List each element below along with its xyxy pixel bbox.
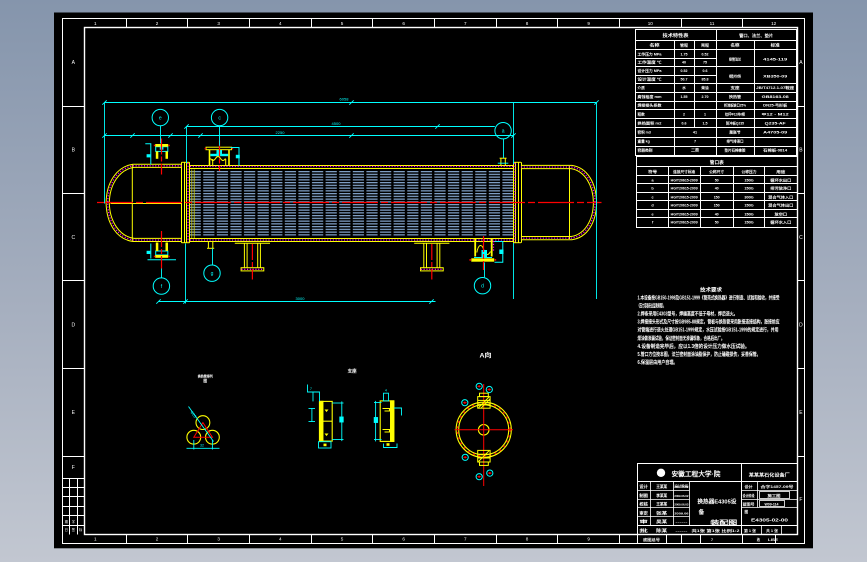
svg-text:GB8163-08: GB8163-08 [762,95,789,99]
svg-text:2.70: 2.70 [702,95,709,99]
svg-text:名称: 名称 [731,43,740,48]
svg-text:工作温度 ℃: 工作温度 ℃ [638,60,663,65]
svg-text:1: 1 [94,21,97,26]
svg-text:150: 150 [714,204,720,208]
svg-text:共 1 张: 共 1 张 [766,528,779,533]
svg-text:e: e [652,213,654,217]
svg-text:2009.06.02: 2009.06.02 [674,494,688,498]
svg-text:陈某: 陈某 [656,527,667,533]
svg-text:支座: 支座 [348,368,358,375]
svg-text:1.75: 1.75 [681,53,688,57]
svg-text:审: 审 [639,519,648,524]
svg-text:吴某: 吴某 [656,518,667,524]
svg-text:9: 9 [587,21,590,26]
svg-text:图: 图 [745,509,749,514]
svg-text:水: 水 [681,85,686,90]
svg-text:重量 kg: 重量 kg [638,139,650,144]
svg-text:3.焊接接头形式及尺寸按GB985-88规定，管板与换热管采: 3.焊接接头形式及尺寸按GB985-88规定，管板与换热管采用胀接连接结构，胀接… [638,319,780,326]
svg-text:7: 7 [464,537,467,542]
svg-text:容积 m3: 容积 m3 [637,130,651,135]
svg-text:LISE: LISE [768,538,778,542]
svg-text:150lb: 150lb [744,213,754,217]
svg-text:5.管口方位按本图，法兰密封面涂油脂保护，防止磕碰损伤，妥善: 5.管口方位按本图，法兰密封面涂油脂保护，防止磕碰损伤，妥善保管。 [638,351,761,358]
svg-text:50: 50 [715,179,719,183]
svg-text:审定: 审定 [639,510,648,515]
svg-text:折流板缺口25%: 折流板缺口25% [724,103,747,108]
svg-text:D: D [799,323,803,329]
svg-text:施工图: 施工图 [768,493,781,498]
svg-text:防冲板Q235: 防冲板Q235 [726,121,744,126]
svg-text:F: F [72,465,75,471]
svg-text:《压力容器安全监察规程》。: 《压力容器安全监察规程》。 [638,302,666,309]
svg-text:程数: 程数 [637,111,646,116]
svg-text:HG/T20615-2009: HG/T20615-2009 [671,179,698,183]
svg-text:6058: 6058 [340,97,350,102]
svg-text:150lb: 150lb [744,221,754,225]
svg-text:a: a [502,129,505,135]
svg-text:管程: 管程 [680,43,688,48]
svg-text:2250: 2250 [276,130,286,135]
svg-text:A向: A向 [480,352,492,360]
svg-text:2: 2 [683,112,685,116]
svg-text:柴油: 柴油 [700,85,709,90]
svg-text:4: 4 [279,537,282,542]
svg-text:E4305-02-00: E4305-02-00 [751,518,789,523]
svg-text:7: 7 [310,387,312,391]
svg-text:换热面积 m2: 换热面积 m2 [638,121,662,126]
svg-text:7: 7 [711,538,713,542]
svg-text:85.8: 85.8 [702,77,709,81]
svg-text:11: 11 [710,21,715,26]
svg-text:腐蚀裕度 mm: 腐蚀裕度 mm [638,94,662,99]
svg-text:膨胀节: 膨胀节 [728,130,741,135]
svg-text:Φ12 - M12: Φ12 - M12 [762,112,789,116]
svg-text:4500: 4500 [332,121,342,126]
svg-text:日: 日 [65,528,68,532]
svg-text:75: 75 [703,61,707,65]
svg-text:5: 5 [341,21,344,26]
svg-text:HG/T20615-2009: HG/T20615-2009 [671,196,698,200]
svg-text:管口表: 管口表 [710,159,724,166]
svg-text:3: 3 [217,21,220,26]
svg-text:底图总号: 底图总号 [642,537,661,542]
svg-text:接管法兰: 接管法兰 [729,57,741,62]
svg-text:4145-119: 4145-119 [763,58,787,62]
svg-text:3000: 3000 [296,296,306,301]
svg-text:换热管: 换热管 [729,94,742,99]
svg-text:对管端进行退火处理GB151-1999规定，水压试验按GB1: 对管端进行退火处理GB151-1999规定，水压试验按GB151-1999的规定… [638,327,779,334]
svg-text:蓝图号: 蓝图号 [743,501,756,506]
svg-text:2009.06: 2009.06 [674,511,688,515]
svg-text:连接尺寸标准: 连接尺寸标准 [672,169,695,174]
svg-text:50: 50 [715,221,719,225]
svg-text:8: 8 [526,21,529,26]
svg-text:公称压力: 公称压力 [742,169,757,174]
svg-text:150: 150 [714,196,720,200]
svg-text:石棉板-0814: 石棉板-0814 [762,148,787,153]
svg-text:1: 1 [94,537,97,542]
svg-text:40: 40 [682,61,686,65]
svg-text:2009.06.03: 2009.06.03 [674,503,688,507]
svg-text:Q235-AF: Q235-AF [765,122,786,126]
svg-text:C: C [799,235,803,241]
svg-text:4: 4 [279,21,282,26]
svg-text:JB/T4712.1-07鞍座: JB/T4712.1-07鞍座 [756,85,795,90]
svg-text:0.52: 0.52 [702,53,709,57]
svg-text:换热器E4305设: 换热器E4305设 [697,498,736,506]
svg-text:设计: 设计 [639,484,648,489]
svg-text:介质: 介质 [637,85,646,90]
svg-text:150lb: 150lb [744,179,754,183]
svg-text:1.55: 1.55 [681,95,688,99]
svg-text:e: e [159,115,162,121]
svg-text:c: c [652,196,654,200]
svg-text:7: 7 [464,21,467,26]
svg-text:150lb: 150lb [744,204,754,208]
svg-text:名称: 名称 [650,43,660,48]
svg-text:1.5: 1.5 [703,122,708,126]
svg-text:2: 2 [156,537,159,542]
svg-text:1.本设备按GB150-1998及GB151-1999《管壳: 1.本设备按GB150-1998及GB151-1999《管壳式换热器》进行制造、… [638,294,780,301]
svg-text:共1张 第1张 比例1:2: 共1张 第1张 比例1:2 [692,528,740,533]
svg-text:校核: 校核 [639,502,648,507]
svg-text:管口、法兰、垫片: 管口、法兰、垫片 [739,32,773,39]
svg-text:排污放净口: 排污放净口 [770,186,792,191]
svg-text:拉杆Φ12共6根: 拉杆Φ12共6根 [725,111,745,116]
svg-text:设计阶段: 设计阶段 [674,484,688,488]
svg-text:张某: 张某 [656,509,667,515]
svg-text:0.6: 0.6 [682,122,687,126]
svg-text:技术要求: 技术要求 [700,286,723,294]
svg-text:------: ------ [675,529,687,533]
svg-text:标准: 标准 [770,43,780,48]
svg-text:第 1 张: 第 1 张 [744,528,757,533]
svg-text:符号: 符号 [648,169,658,174]
svg-text:安徽工程大学·院: 安徽工程大学·院 [672,469,722,478]
svg-text:HG/T20615-2009: HG/T20615-2009 [671,204,698,208]
svg-text:字: 字 [72,519,75,524]
svg-text:合字1457-09号: 合字1457-09号 [761,484,795,489]
svg-text:循环水出口: 循环水出口 [769,178,792,183]
svg-text:混合气体出口: 混合气体出口 [768,203,794,208]
svg-text:容器类别: 容器类别 [636,148,652,153]
svg-text:备: 备 [698,508,705,516]
svg-text:垫片石棉橡胶: 垫片石棉橡胶 [725,148,746,153]
svg-text:C: C [71,235,75,241]
svg-text:放空口: 放空口 [773,212,788,217]
svg-text:F: F [799,497,802,503]
svg-text:A4705-09: A4705-09 [763,131,787,135]
svg-text:2.焊条采用E4303型号，焊缝高度不低于母材，焊后退火。: 2.焊条采用E4303型号，焊缝高度不低于母材，焊后退火。 [638,311,738,318]
svg-text:李某某: 李某某 [656,492,667,498]
svg-text:0.6: 0.6 [703,69,708,73]
svg-text:支座: 支座 [729,85,740,90]
svg-text:焊接接头系数: 焊接接头系数 [636,103,662,108]
svg-text:50.7: 50.7 [681,77,688,81]
svg-text:某某某石化设备厂: 某某某石化设备厂 [748,472,791,479]
svg-text:0.52: 0.52 [681,69,688,73]
svg-text:10: 10 [648,21,654,26]
svg-text:6.保温层由用户自理。: 6.保温层由用户自理。 [638,359,678,366]
svg-text:用途: 用途 [775,169,786,174]
svg-text:8: 8 [526,537,529,542]
svg-text:工作压力 MPa: 工作压力 MPa [638,52,663,57]
svg-text:设计: 设计 [745,484,754,489]
svg-text:排气排液口: 排气排液口 [727,139,744,144]
svg-text:煤油做渗漏试验，保证密封面无渗漏现象，合格后出厂。: 煤油做渗漏试验，保证密封面无渗漏现象，合格后出厂。 [638,335,725,342]
svg-text:150lb: 150lb [744,187,754,191]
svg-text:5: 5 [341,537,344,542]
svg-text:d: d [481,284,484,290]
svg-text:技术特性表: 技术特性表 [663,32,689,39]
svg-text:批: 批 [639,528,648,533]
svg-text:相垫片材料: 相垫片材料 [729,74,741,79]
svg-text:HG/T20615-2009: HG/T20615-2009 [671,213,698,217]
svg-text:41: 41 [693,131,697,135]
svg-text:王某某: 王某某 [656,483,667,489]
svg-text:设计压力 MPa: 设计压力 MPa [638,68,663,73]
svg-text:2: 2 [156,21,159,26]
svg-text:12: 12 [771,21,777,26]
svg-text:二类: 二类 [691,148,699,153]
svg-text:制图: 制图 [639,493,648,498]
svg-text:40: 40 [715,187,719,191]
svg-text:g: g [211,271,214,277]
svg-text:XB350-09: XB350-09 [763,75,787,79]
svg-text:王某某: 王某某 [656,501,667,507]
svg-text:6: 6 [402,537,405,542]
svg-text:300lb: 300lb [744,196,754,200]
svg-text:HG/T20615-2009: HG/T20615-2009 [671,187,698,191]
svg-text:循环水入口: 循环水入口 [769,220,792,225]
svg-text:------: ------ [675,520,687,524]
svg-text:图: 图 [203,378,207,383]
svg-text:9: 9 [587,537,590,542]
svg-text:装配图: 装配图 [709,518,739,526]
svg-text:32: 32 [200,444,204,448]
svg-text:HG/T20615-2009: HG/T20615-2009 [671,221,698,225]
svg-text:7: 7 [694,140,696,144]
svg-text:DN25-弓形板: DN25-弓形板 [763,103,788,108]
svg-text:设计阶段: 设计阶段 [743,493,756,498]
svg-text:设计温度 ℃: 设计温度 ℃ [638,76,663,81]
svg-text:D: D [71,323,75,329]
svg-text:W09-114: W09-114 [765,502,779,506]
svg-text:期: 期 [65,519,68,524]
svg-text:4: 4 [385,389,387,393]
svg-text:公称尺寸: 公称尺寸 [709,169,724,174]
svg-text:4.设备制造完毕后，应以1.3倍的设计压力做水压试验。: 4.设备制造完毕后，应以1.3倍的设计压力做水压试验。 [638,343,750,350]
svg-text:换热管排列: 换热管排列 [198,374,213,379]
svg-text:混合气体入口: 混合气体入口 [768,195,794,200]
svg-text:6: 6 [402,21,405,26]
svg-text:40: 40 [715,213,719,217]
svg-text:壳程: 壳程 [700,43,710,48]
svg-text:1: 1 [704,112,706,116]
svg-text:3: 3 [217,537,220,542]
